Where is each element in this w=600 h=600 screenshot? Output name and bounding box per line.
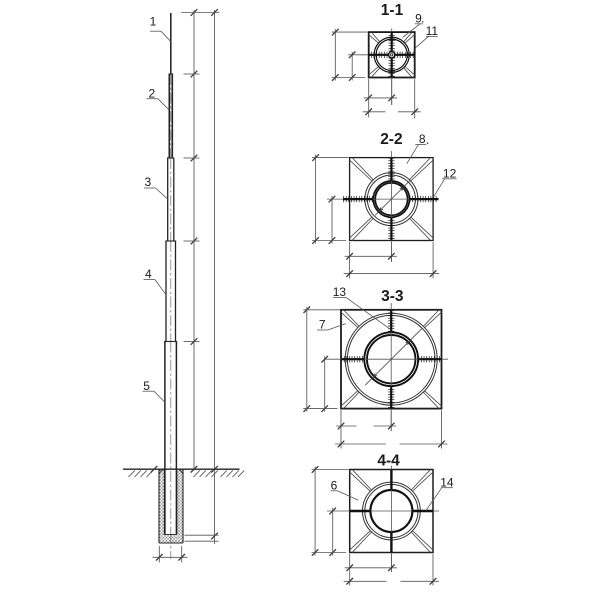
svg-text:6: 6 (331, 478, 338, 492)
svg-text:13: 13 (333, 285, 347, 299)
svg-text:1-1: 1-1 (381, 2, 404, 19)
svg-text:11: 11 (426, 24, 439, 38)
svg-text:7: 7 (319, 317, 326, 331)
svg-text:3-3: 3-3 (381, 288, 404, 305)
svg-text:1: 1 (150, 15, 157, 29)
svg-text:2-2: 2-2 (380, 131, 402, 148)
svg-text:14: 14 (440, 475, 454, 489)
svg-text:4: 4 (145, 267, 152, 281)
svg-text:12: 12 (443, 167, 457, 181)
svg-text:4-4: 4-4 (377, 453, 400, 470)
svg-text:5: 5 (143, 379, 150, 393)
svg-text:3: 3 (145, 175, 152, 189)
